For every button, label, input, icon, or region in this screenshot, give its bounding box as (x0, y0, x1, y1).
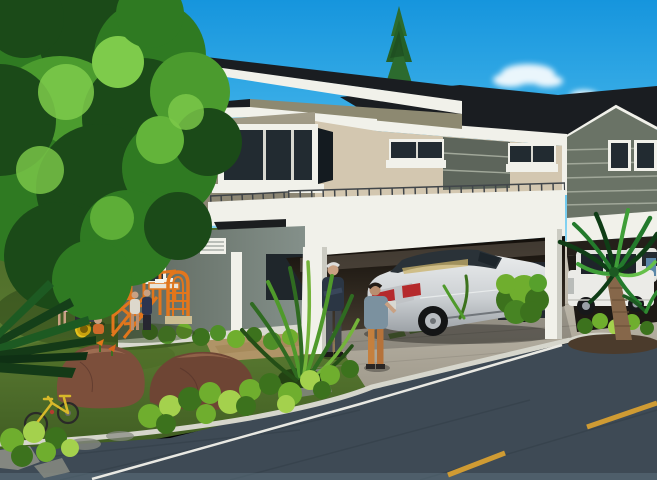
architectural-rendering (0, 0, 657, 480)
palm-island-soil (568, 334, 657, 354)
rendering-stage (0, 0, 657, 480)
front-window-2 (506, 143, 558, 172)
inner-post (231, 252, 242, 332)
accent-panel (443, 137, 510, 190)
gable-window-1 (608, 140, 631, 171)
gable-window-2 (634, 140, 657, 171)
right-column-shade (557, 229, 562, 339)
front-window-1 (386, 139, 446, 168)
